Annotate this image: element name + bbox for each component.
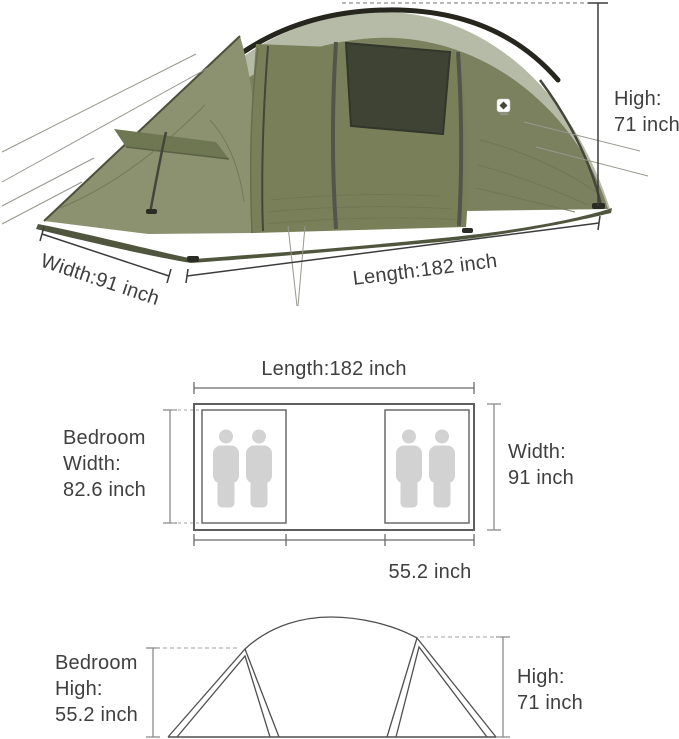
bedroom-width-label-line3: 82.6 inch	[63, 477, 146, 503]
floorplan-width-label: Width: 91 inch	[508, 439, 574, 491]
bedroom-width-label-line1: Bedroom	[63, 425, 146, 451]
profile-right-pole-triangle	[387, 638, 496, 737]
bedroom-width-label-line2: Width:	[63, 451, 146, 477]
photo-high-label-line2: 71 inch	[614, 112, 679, 138]
bedroom-high-label-line2: High:	[55, 676, 138, 702]
bedroom-high-label-line1: Bedroom	[55, 650, 138, 676]
profile-high-label-line1: High:	[517, 664, 583, 690]
floorplan-diagram	[163, 382, 501, 546]
photo-high-label: High: 71 inch	[614, 86, 679, 138]
floorplan-width-dimension-line	[487, 404, 501, 530]
floorplan-bedroom-width-label: Bedroom Width: 82.6 inch	[63, 425, 146, 503]
tent-window	[346, 43, 450, 134]
profile-high-label-line2: 71 inch	[517, 690, 583, 716]
floorplan-width-label-line2: 91 inch	[508, 465, 574, 491]
photo-high-label-line1: High:	[614, 86, 679, 112]
profile-bedroom-high-label: Bedroom High: 55.2 inch	[55, 650, 138, 728]
product-dimension-figure: High: 71 inch Length:182 inch Width:91 i…	[0, 0, 679, 739]
floorplan-bottom-dimension-line	[194, 534, 474, 546]
profile-roof-arch	[245, 617, 417, 649]
bedroom-high-label-line3: 55.2 inch	[55, 702, 138, 728]
profile-diagram	[146, 617, 510, 737]
floorplan-width-label-line1: Width:	[508, 439, 574, 465]
profile-high-label: High: 71 inch	[517, 664, 583, 716]
floorplan-inner-width-label: 55.2 inch	[350, 559, 510, 585]
profile-bedroom-high-dimension-line	[146, 648, 240, 737]
profile-high-dimension-line	[420, 637, 510, 737]
floorplan-length-label: Length:182 inch	[234, 356, 434, 382]
profile-left-pole-triangle	[168, 649, 279, 737]
floorplan-length-dimension-line	[194, 382, 474, 394]
tent-photo-illustration	[2, 10, 648, 306]
